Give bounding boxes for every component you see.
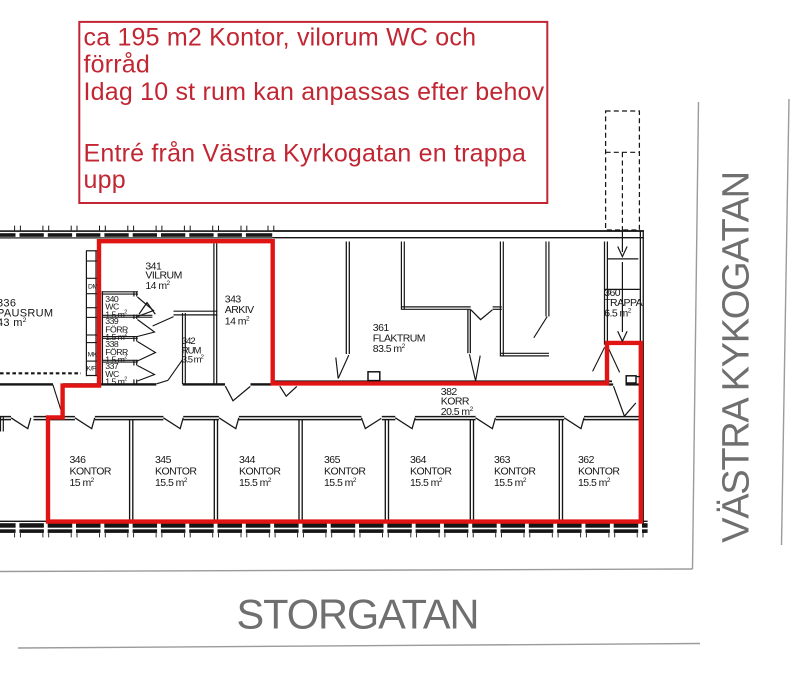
svg-text:VÄSTRA KYKOGATAN: VÄSTRA KYKOGATAN bbox=[716, 172, 758, 543]
svg-text:STORGATAN: STORGATAN bbox=[237, 591, 479, 638]
